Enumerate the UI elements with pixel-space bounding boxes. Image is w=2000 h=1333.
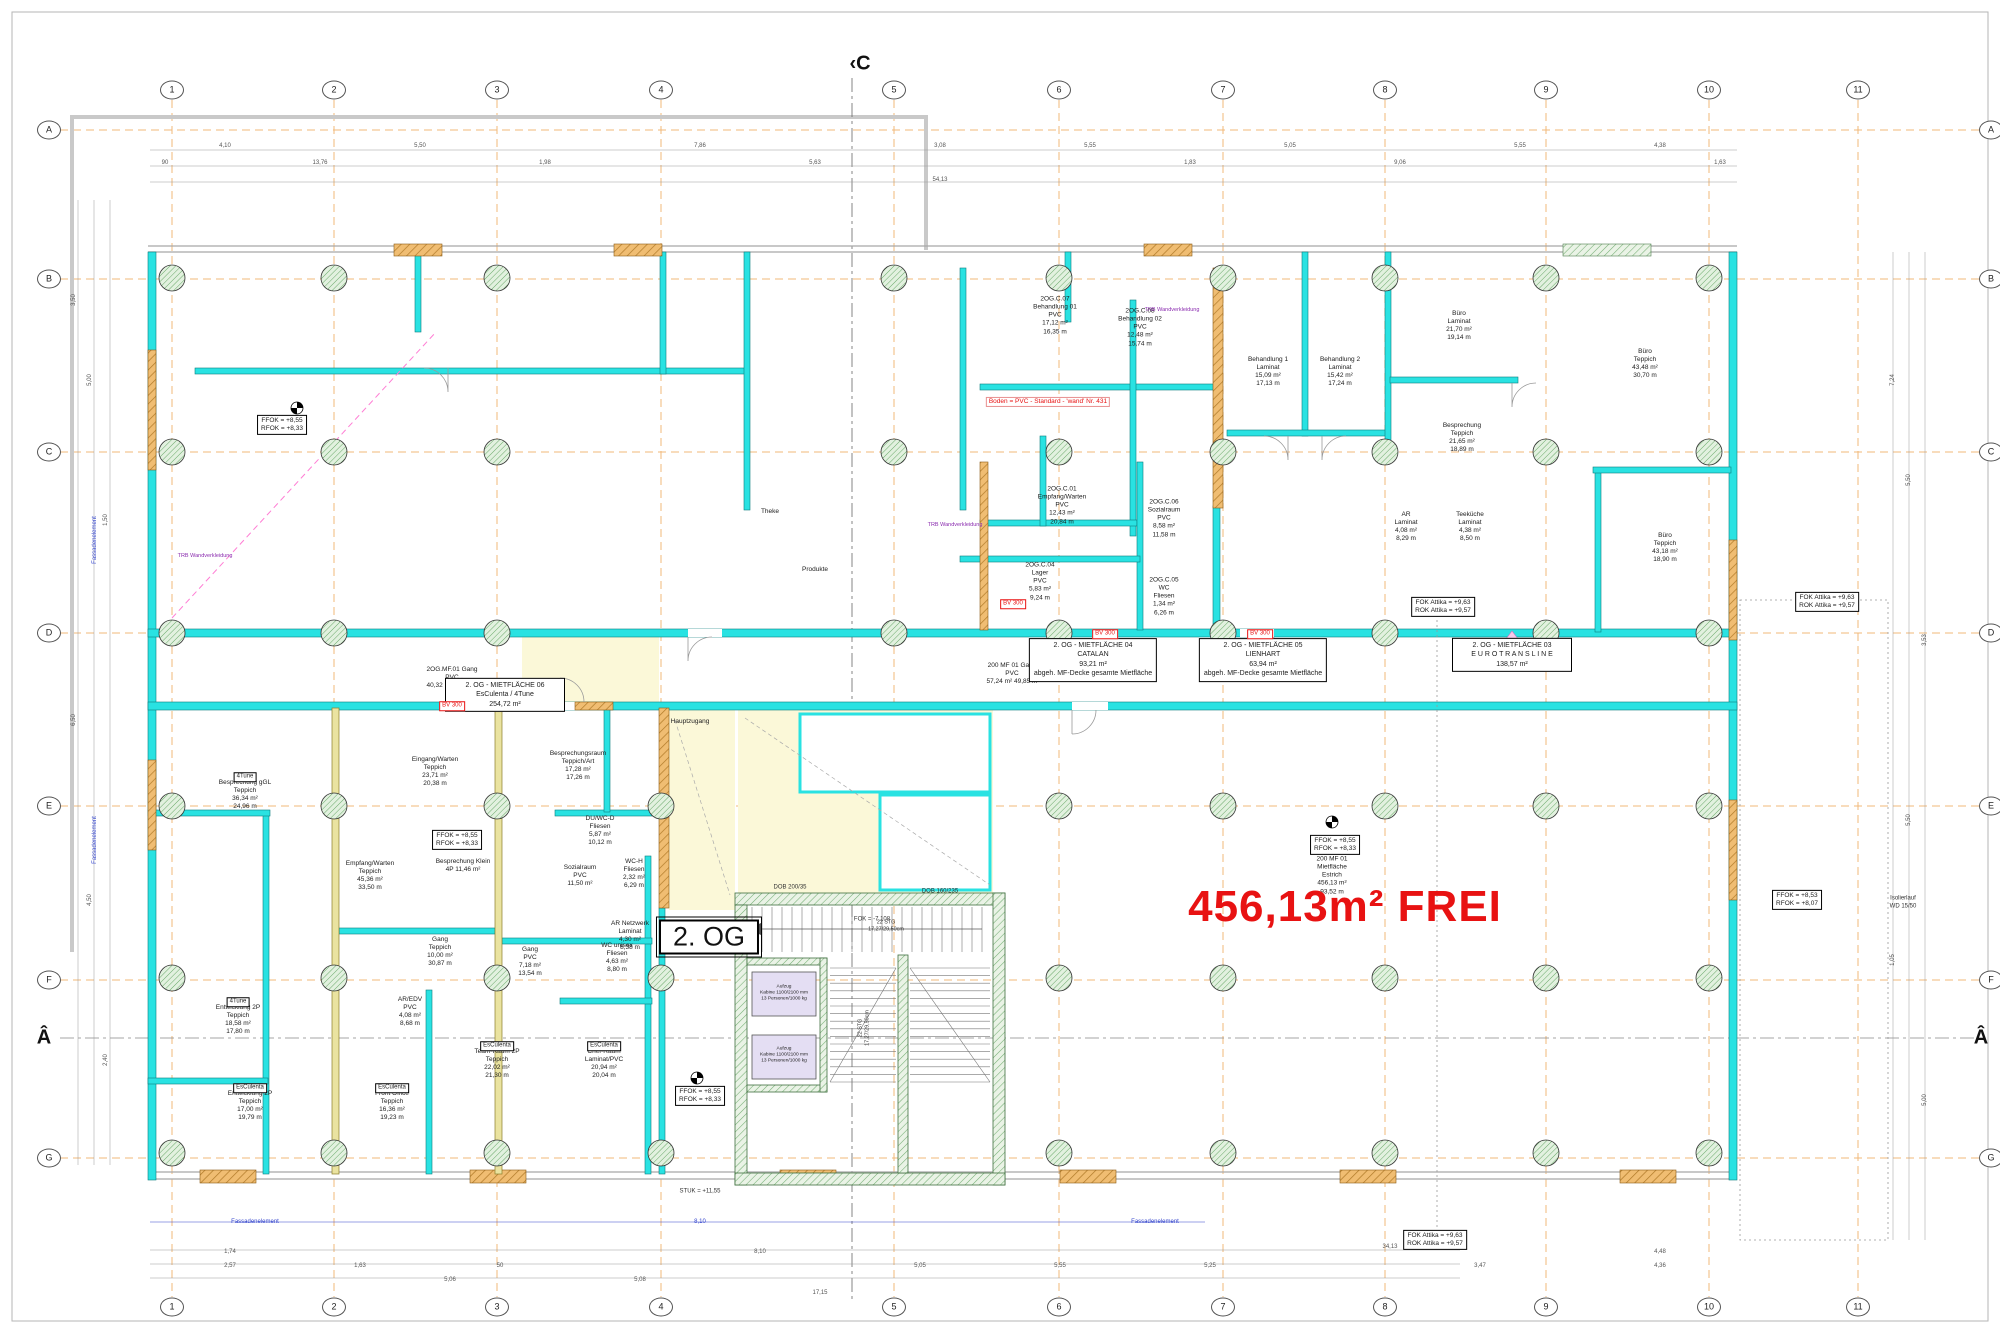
rooms-label: Besprechungsraum Teppich/Art 17,28 m² 17… <box>550 750 606 783</box>
dims-bottom-label: 3,47 <box>1474 1263 1486 1269</box>
dims-right-label: 7,24 <box>1890 374 1896 386</box>
grid-bubble: A <box>37 121 61 140</box>
free-area-text: 456,13m² FREI <box>1188 882 1502 932</box>
red-tags-label: BV 300 <box>1247 629 1273 639</box>
rooms-label: Besprechung Klein 4P 11,46 m² <box>436 858 491 874</box>
red-tags-label: BV 300 <box>439 701 465 711</box>
rooms-label: Theke <box>761 508 779 516</box>
blue-notes-label: Fassadenelement <box>1131 1219 1179 1225</box>
attika-boxes-label: FOK Attika = +9,63 ROK Attika = +9,57 <box>1403 1230 1467 1250</box>
dims-bottom-label: 4,48 <box>1654 1249 1666 1255</box>
grid-bubble: 9 <box>1534 1298 1558 1317</box>
dims-left-label: 2,40 <box>103 1054 109 1066</box>
dims-bottom-label: 5,55 <box>1054 1263 1066 1269</box>
tenants-label: 2. OG - MIETFLÄCHE 03 E U R O T R A N S … <box>1452 638 1572 672</box>
dims-top-label: 4,38 <box>1654 143 1666 149</box>
lift-labels-label: Aufzug Kabine 1100/2100 mm 13 Personen/1… <box>760 1047 808 1066</box>
grid-bubble: G <box>37 1149 61 1168</box>
dims-top-label: 4,10 <box>219 143 231 149</box>
dims-top-label: 7,86 <box>694 143 706 149</box>
grid-bubble: 8 <box>1373 1298 1397 1317</box>
elev-boxes-label: FFOK = +8,53 RFOK = +8,07 <box>1772 890 1822 910</box>
dims-bottom-label: 17,15 <box>812 1290 827 1296</box>
grid-bubble: 4 <box>649 81 673 100</box>
rooms-label: Büro Teppich 43,18 m² 18,90 m <box>1652 532 1678 565</box>
attika-boxes-label: FOK Attika = +9,63 ROK Attika = +9,57 <box>1795 592 1859 612</box>
rooms-label: Front Office Teppich 16,36 m² 19,23 m <box>375 1090 409 1123</box>
dims-top-label: 90 <box>162 160 169 166</box>
misc-label: Isolierlauf WD 15/50 <box>1890 896 1917 911</box>
grid-bubble: 10 <box>1697 1298 1721 1317</box>
dims-top-label: 1,98 <box>539 160 551 166</box>
dims-left-label: 3,50 <box>71 294 77 306</box>
rooms-label: DU/WC-D Fliesen 5,87 m² 10,12 m <box>586 815 615 848</box>
dims-bottom-label: 4,36 <box>1654 1263 1666 1269</box>
rooms-label: 2OG.C.01 Empfang/Warten PVC 12,43 m² 20,… <box>1038 486 1087 527</box>
blue-notes-label: Fassadenelement <box>92 816 98 864</box>
section-marker: Â <box>1974 1027 1988 1050</box>
dims-left-label: 6,50 <box>71 714 77 726</box>
dims-right-label: 1,05 <box>1890 954 1896 966</box>
rooms-label: 2OG.C.05 WC Fliesen 1,34 m² 6,26 m <box>1149 577 1178 618</box>
section-marker: ‹C <box>849 53 870 76</box>
grid-bubble: 9 <box>1534 81 1558 100</box>
rooms-label: Behandlung 1 Laminat 15,09 m² 17,13 m <box>1248 356 1288 389</box>
grid-bubble: G <box>1979 1149 2000 1168</box>
grid-bubble: C <box>1979 443 2000 462</box>
dims-top-label: 5,55 <box>1084 143 1096 149</box>
annotation-layer: 2OG.C.07 Behandlung 01 PVC 17,12 m² 16,3… <box>0 0 2000 1333</box>
dims-right-label: 5,50 <box>1906 474 1912 486</box>
dims-bottom-label: 2,57 <box>224 1263 236 1269</box>
grid-bubble: A <box>1979 121 2000 140</box>
grid-bubble: 3 <box>485 1298 509 1317</box>
dims-top-label: 9,06 <box>1394 160 1406 166</box>
rooms-label: 2OG.C.06 Sozialraum PVC 8,58 m² 11,58 m <box>1148 499 1181 540</box>
tags-label: 4Tune <box>234 772 257 782</box>
rooms-label: Team-Raum 2P Teppich 22,02 m² 21,30 m <box>474 1048 519 1081</box>
blue-notes-label: Fassadenelement <box>231 1219 279 1225</box>
dims-bottom-label: 5,05 <box>914 1263 926 1269</box>
dims-top-label: 5,55 <box>1514 143 1526 149</box>
purple-notes-label: TRB Wandverkleidung <box>928 522 983 528</box>
grid-bubble: 11 <box>1846 81 1870 100</box>
rooms-label: Entwicklung 2P Teppich 17,00 m² 19,79 m <box>228 1090 272 1123</box>
elev-boxes-label: FFOK = +8,55 RFOK = +8,33 <box>675 1086 725 1106</box>
grid-bubble: 1 <box>160 81 184 100</box>
red-tags-label: BV 300 <box>1000 599 1026 609</box>
grid-bubble: 11 <box>1846 1298 1870 1317</box>
rooms-label: Gang PVC 7,18 m² 13,54 m <box>518 946 542 979</box>
dims-top-label: 1,83 <box>1184 160 1196 166</box>
rooms-label: Gang Teppich 10,00 m² 30,87 m <box>427 936 453 969</box>
rooms-label: Hauptzugang <box>671 718 710 726</box>
stair-notes-label: 22 STG 17,27/29,50cm <box>868 919 904 933</box>
grid-bubble: 2 <box>322 1298 346 1317</box>
grid-bubble: E <box>37 797 61 816</box>
dims-top-label: 5,50 <box>414 143 426 149</box>
grid-bubble: B <box>37 270 61 289</box>
grid-bubble: 4 <box>649 1298 673 1317</box>
misc-label: DOB 200/35 <box>773 884 806 892</box>
stair-notes-label: 22 STG 17,27/29,50cm <box>857 1010 871 1046</box>
attika-boxes-label: FOK Attika = +9,63 ROK Attika = +9,57 <box>1411 597 1475 617</box>
dims-bottom-label: 1,74 <box>224 1249 236 1255</box>
tags-label: 4Tune <box>227 997 250 1007</box>
rooms-label: WC-H Fliesen 2,32 m² 6,29 m <box>623 858 645 891</box>
tags-label: EsCulenta <box>233 1083 267 1093</box>
dims-bottom-label: 50 <box>497 1263 504 1269</box>
dims-bottom-label: 5,06 <box>444 1277 456 1283</box>
rooms-label: Büro Teppich 43,48 m² 30,70 m <box>1632 348 1658 381</box>
purple-notes-label: TRB Wandverkleidung <box>1145 307 1200 313</box>
grid-bubble: 5 <box>882 1298 906 1317</box>
dims-left-label: 4,50 <box>87 894 93 906</box>
dims-bottom-label: 34,13 <box>1382 1244 1397 1250</box>
dims-bottom-label: 5,08 <box>634 1277 646 1283</box>
tenants-label: 2. OG - MIETFLÄCHE 05 LIENHART 63,94 m² … <box>1199 638 1327 682</box>
dims-bottom-label: 5,25 <box>1204 1263 1216 1269</box>
rooms-label: Besprechung gGL Teppich 36,34 m² 24,96 m <box>219 779 271 812</box>
rooms-label: Teeküche Laminat 4,38 m² 8,50 m <box>1456 511 1484 544</box>
grid-bubble: 3 <box>485 81 509 100</box>
grid-bubble: F <box>37 971 61 990</box>
purple-notes-label: TRB Wandverkleidung <box>178 553 233 559</box>
elev-boxes-label: FFOK = +8,55 RFOK = +8,33 <box>1310 835 1360 855</box>
rooms-label: 2OG.C.08 Behandlung 02 PVC 12,48 m² 15,7… <box>1118 308 1162 349</box>
blue-notes-label: Fassadenelement <box>92 516 98 564</box>
rooms-label: Chef-Raum Laminat/PVC 20,94 m² 20,04 m <box>585 1048 623 1081</box>
grid-bubble: D <box>37 624 61 643</box>
dims-right-label: 5,50 <box>1906 814 1912 826</box>
rooms-label: Besprechung Teppich 21,65 m² 18,89 m <box>1443 422 1481 455</box>
dims-top-label: 3,08 <box>934 143 946 149</box>
dims-top-label: 54,13 <box>932 177 947 183</box>
floor-label: 2. OG <box>659 920 759 955</box>
rooms-label: Produkte <box>802 566 828 574</box>
rooms-label: 2OG.C.04 Lager PVC 5,83 m² 9,24 m <box>1025 562 1054 603</box>
grid-bubble: 8 <box>1373 81 1397 100</box>
grid-bubble: 7 <box>1211 81 1235 100</box>
grid-bubble: 10 <box>1697 81 1721 100</box>
grid-bubble: 2 <box>322 81 346 100</box>
section-marker: Â <box>37 1027 51 1050</box>
grid-bubble: B <box>1979 270 2000 289</box>
dims-bottom-label: 8,10 <box>754 1249 766 1255</box>
grid-bubble: 6 <box>1047 81 1071 100</box>
grid-bubble: F <box>1979 971 2000 990</box>
dims-left-label: 1,50 <box>103 514 109 526</box>
dims-top-label: 5,05 <box>1284 143 1296 149</box>
grid-bubble: 5 <box>882 81 906 100</box>
elev-boxes-label: FFOK = +8,55 RFOK = +8,33 <box>432 830 482 850</box>
tags-label: EsCulenta <box>375 1083 409 1093</box>
dims-right-label: 5,00 <box>1922 1094 1928 1106</box>
grid-bubble: D <box>1979 624 2000 643</box>
rooms-label: Büro Laminat 21,70 m² 19,14 m <box>1446 310 1472 343</box>
rooms-label: AR/EDV PVC 4,08 m² 8,68 m <box>398 996 422 1029</box>
rooms-label: AR Netzwerk Laminat 4,30 m² 8,38 m <box>611 920 649 953</box>
dims-top-label: 13,76 <box>312 160 327 166</box>
misc-label: STUK = +11,55 <box>680 1188 721 1196</box>
red-tags-label: BV 300 <box>1092 629 1118 639</box>
rooms-label: Sozialraum PVC 11,50 m² <box>564 864 597 888</box>
floorplan-sheet: 2OG.C.07 Behandlung 01 PVC 17,12 m² 16,3… <box>0 0 2000 1333</box>
elev-boxes-label: FFOK = +8,55 RFOK = +8,33 <box>257 415 307 435</box>
dims-bottom-label: 1,63 <box>354 1263 366 1269</box>
rooms-label: Behandlung 2 Laminat 15,42 m² 17,24 m <box>1320 356 1360 389</box>
tags-label: EsCulenta <box>587 1041 621 1051</box>
misc-label: DOB 160/235 <box>922 888 958 896</box>
dims-top-label: 5,63 <box>809 160 821 166</box>
tenants-label: 2. OG - MIETFLÄCHE 04 CATALAN 93,21 m² a… <box>1029 638 1157 682</box>
grid-bubble: 7 <box>1211 1298 1235 1317</box>
grid-bubble: C <box>37 443 61 462</box>
rooms-label: Eingang/Warten Teppich 23,71 m² 20,38 m <box>412 756 458 789</box>
lift-labels-label: Aufzug Kabine 1100/2100 mm 13 Personen/1… <box>760 985 808 1004</box>
dims-top-label: 1,63 <box>1714 160 1726 166</box>
rooms-label: Empfang/Warten Teppich 45,36 m² 33,50 m <box>346 860 395 893</box>
dims-left-label: 5,00 <box>87 374 93 386</box>
grid-bubble: E <box>1979 797 2000 816</box>
blue-notes-label: 8,10 <box>694 1219 706 1225</box>
tags-label: EsCulenta <box>480 1041 514 1051</box>
grid-bubble: 6 <box>1047 1298 1071 1317</box>
grid-bubble: 1 <box>160 1298 184 1317</box>
rooms-label: AR Laminat 4,08 m² 8,29 m <box>1394 511 1417 544</box>
rooms-label: 2OG.C.07 Behandlung 01 PVC 17,12 m² 16,3… <box>1033 296 1077 337</box>
rooms-label: Entwicklung 2P Teppich 18,58 m² 17,80 m <box>216 1004 260 1037</box>
dims-right-label: 3,53 <box>1922 634 1928 646</box>
red-notes-label: Boden = PVC - Standard - 'wand' Nr. 431 <box>986 397 1110 407</box>
